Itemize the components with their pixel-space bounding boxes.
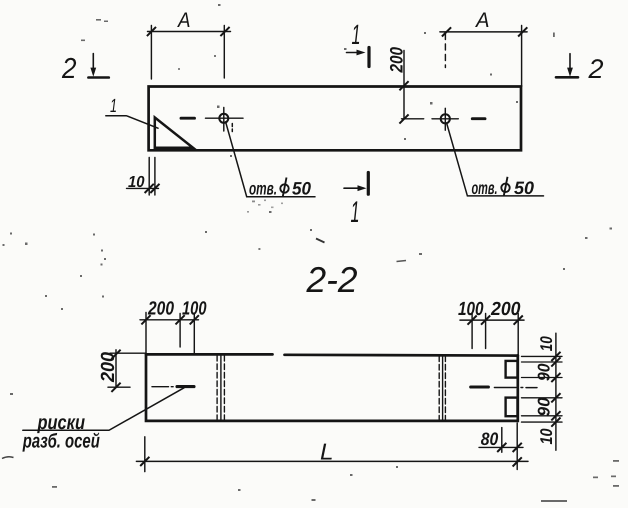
svg-text:200: 200 [147,298,174,319]
svg-text:2-2: 2-2 [306,259,358,300]
svg-text:100: 100 [182,298,207,319]
svg-text:2: 2 [61,53,76,85]
svg-text:A: A [176,9,190,32]
svg-text:10: 10 [128,174,145,191]
svg-text:50: 50 [292,179,311,199]
svg-text:L: L [320,438,334,464]
svg-text:80: 80 [481,429,499,449]
svg-text:200: 200 [387,47,407,73]
svg-text:разб. осей: разб. осей [22,430,100,452]
svg-text:10: 10 [537,428,556,444]
svg-text:100: 100 [458,299,484,320]
svg-text:200: 200 [490,299,521,320]
svg-text:2: 2 [588,54,604,84]
svg-text:A: A [474,9,489,32]
svg-text:отв.: отв. [472,178,498,198]
svg-text:1: 1 [110,96,117,117]
svg-text:отв.: отв. [249,179,277,199]
svg-text:1: 1 [351,196,360,229]
svg-text:200: 200 [98,352,119,383]
svg-text:90: 90 [535,363,554,381]
svg-text:90: 90 [535,397,554,417]
svg-text:50: 50 [514,178,534,198]
svg-text:1: 1 [352,19,361,50]
svg-text:10: 10 [537,336,556,351]
